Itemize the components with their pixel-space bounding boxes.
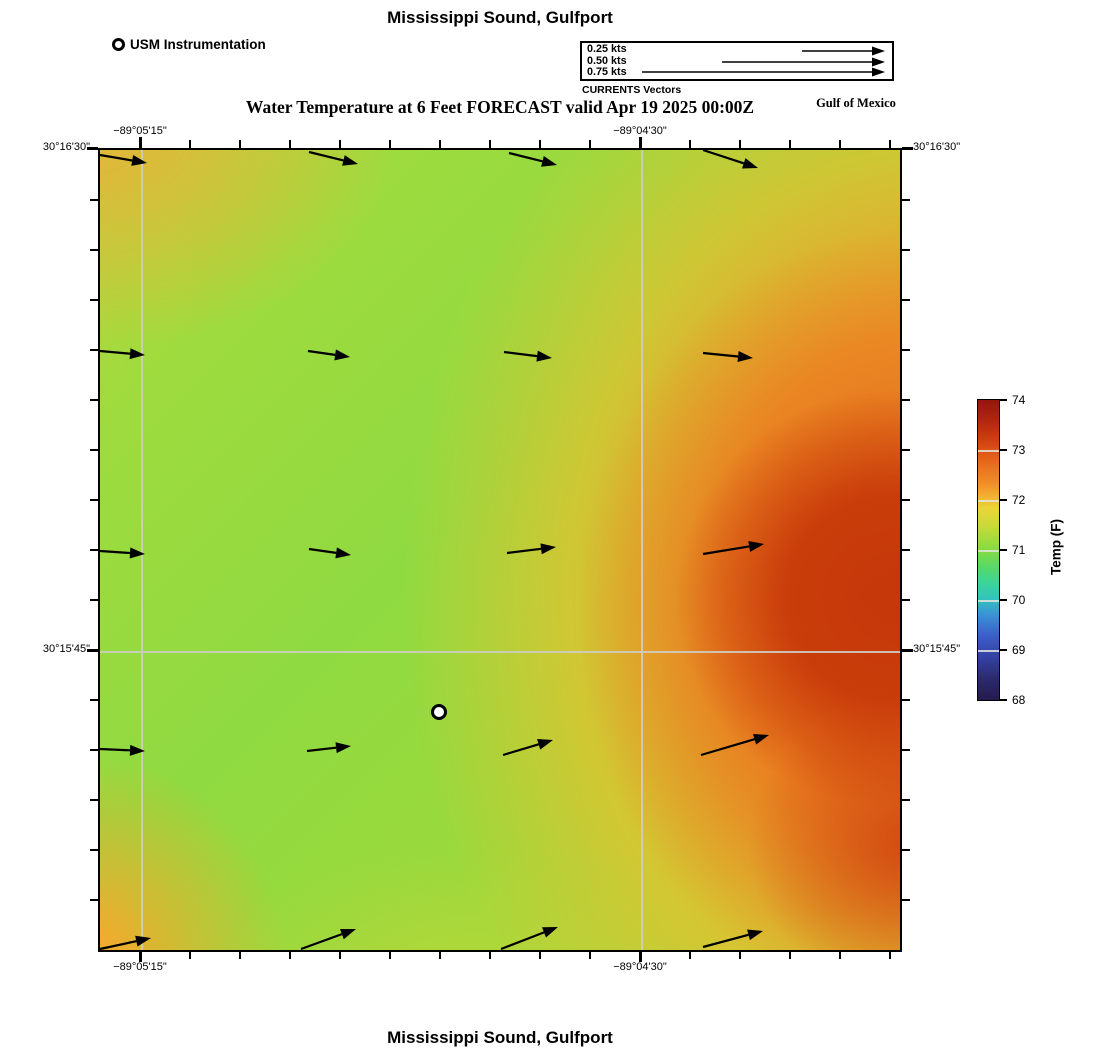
gulf-of-mexico-label: Gulf of Mexico — [770, 96, 942, 111]
top-major-tick-left — [139, 137, 142, 148]
current-arrow-shaft — [309, 549, 336, 553]
colorbar-tick-label-68: 68 — [1012, 692, 1025, 708]
current-arrow-head — [536, 351, 552, 362]
vector-legend-caption: CURRENTS Vectors — [582, 84, 681, 96]
current-arrow-head — [872, 47, 885, 56]
temperature-colorbar — [977, 399, 1000, 701]
current-arrow-head — [872, 68, 885, 77]
current-arrow-head — [131, 155, 147, 166]
current-arrow-head — [748, 541, 764, 552]
footer-title: Mississippi Sound, Gulfport — [98, 1028, 902, 1048]
current-arrow-shaft — [100, 551, 130, 553]
current-arrow-head — [872, 58, 885, 67]
current-arrow-shaft — [507, 549, 541, 553]
current-arrow-shaft — [703, 935, 749, 947]
current-arrow-head — [738, 351, 753, 362]
left-axis-label-301630: 30°16'30" — [0, 141, 90, 153]
current-arrow-shaft — [100, 941, 136, 949]
colorbar-tick — [1000, 399, 1007, 401]
colorbar-tick — [1000, 549, 1007, 551]
colorbar-tick — [1000, 599, 1007, 601]
colorbar-tick — [1000, 699, 1007, 701]
current-arrow-shaft — [100, 155, 132, 160]
left-axis-ticks — [90, 199, 98, 903]
current-arrow-shaft — [503, 744, 539, 755]
top-major-tick-right — [639, 137, 642, 148]
colorbar-tick — [1000, 649, 1007, 651]
current-arrow-shaft — [501, 932, 544, 949]
temperature-map — [98, 148, 902, 952]
current-arrow-head — [335, 547, 351, 558]
colorbar-tick-label-72: 72 — [1012, 492, 1025, 508]
current-arrow-shaft — [100, 351, 130, 354]
colorbar-tick-label-73: 73 — [1012, 442, 1025, 458]
colorbar-gridline — [978, 450, 999, 452]
current-arrow-head — [742, 158, 758, 168]
current-vectors-layer — [100, 150, 899, 949]
right-axis-label-301630: 30°16'30" — [913, 141, 960, 153]
current-arrow-shaft — [504, 352, 537, 356]
current-arrow-head — [537, 739, 553, 750]
plot-page: Mississippi Sound, Gulfport USM Instrume… — [0, 0, 1100, 1050]
current-vector-legend-box: 0.25 kts 0.50 kts 0.75 kts — [580, 41, 894, 81]
colorbar-gridline — [978, 550, 999, 552]
page-title: Mississippi Sound, Gulfport — [98, 8, 902, 28]
current-arrow-head — [130, 348, 145, 359]
top-axis-ticks — [139, 140, 892, 148]
current-arrow-head — [342, 155, 358, 166]
current-arrow-shaft — [701, 739, 755, 755]
right-axis-ticks — [902, 199, 910, 903]
current-arrow-shaft — [309, 152, 343, 160]
left-axis-label-301545: 30°15'45" — [0, 643, 90, 655]
colorbar-axis-label: Temp (F) — [1049, 519, 1064, 575]
right-major-tick-top — [902, 147, 913, 150]
usm-legend-label: USM Instrumentation — [130, 37, 266, 52]
colorbar-tick — [1000, 449, 1007, 451]
current-arrow-shaft — [307, 748, 336, 751]
current-arrow-shaft — [308, 351, 335, 355]
current-arrow-shaft — [703, 150, 744, 163]
current-arrow-head — [753, 734, 769, 745]
current-arrow-shaft — [703, 546, 749, 554]
colorbar-tick-label-69: 69 — [1012, 642, 1025, 658]
current-arrow-head — [130, 548, 145, 559]
top-axis-label-890430: −89°04'30" — [613, 125, 667, 137]
top-axis-label-890515: −89°05'15" — [113, 125, 167, 137]
current-arrow-head — [540, 543, 556, 554]
colorbar-tick — [1000, 499, 1007, 501]
current-arrow-head — [130, 745, 145, 756]
current-arrow-head — [747, 930, 763, 941]
vector-legend-arrows — [582, 43, 891, 77]
colorbar-tick-label-70: 70 — [1012, 592, 1025, 608]
current-arrow-head — [541, 156, 557, 167]
right-major-tick-mid — [902, 649, 913, 652]
colorbar-gridline — [978, 500, 999, 502]
current-arrow-head — [542, 927, 558, 938]
current-arrow-head — [340, 929, 356, 939]
colorbar-tick-label-71: 71 — [1012, 542, 1025, 558]
instrument-marker — [433, 706, 446, 719]
current-arrow-shaft — [301, 934, 342, 949]
colorbar-gridline — [978, 600, 999, 602]
colorbar-gridline — [978, 650, 999, 652]
usm-instrumentation-legend: USM Instrumentation — [112, 37, 266, 52]
bottom-axis-label-890515: −89°05'15" — [113, 961, 167, 973]
current-arrow-shaft — [100, 749, 130, 750]
right-axis-label-301545: 30°15'45" — [913, 643, 960, 655]
current-arrow-shaft — [703, 353, 738, 357]
current-arrow-head — [335, 742, 351, 753]
current-arrow-head — [334, 349, 350, 360]
instrument-marker-icon — [112, 38, 125, 51]
bottom-axis-ticks — [139, 951, 892, 959]
colorbar-tick-label-74: 74 — [1012, 392, 1025, 408]
current-arrow-shaft — [509, 153, 542, 161]
bottom-axis-label-890430: −89°04'30" — [613, 961, 667, 973]
current-arrow-head — [135, 936, 151, 947]
